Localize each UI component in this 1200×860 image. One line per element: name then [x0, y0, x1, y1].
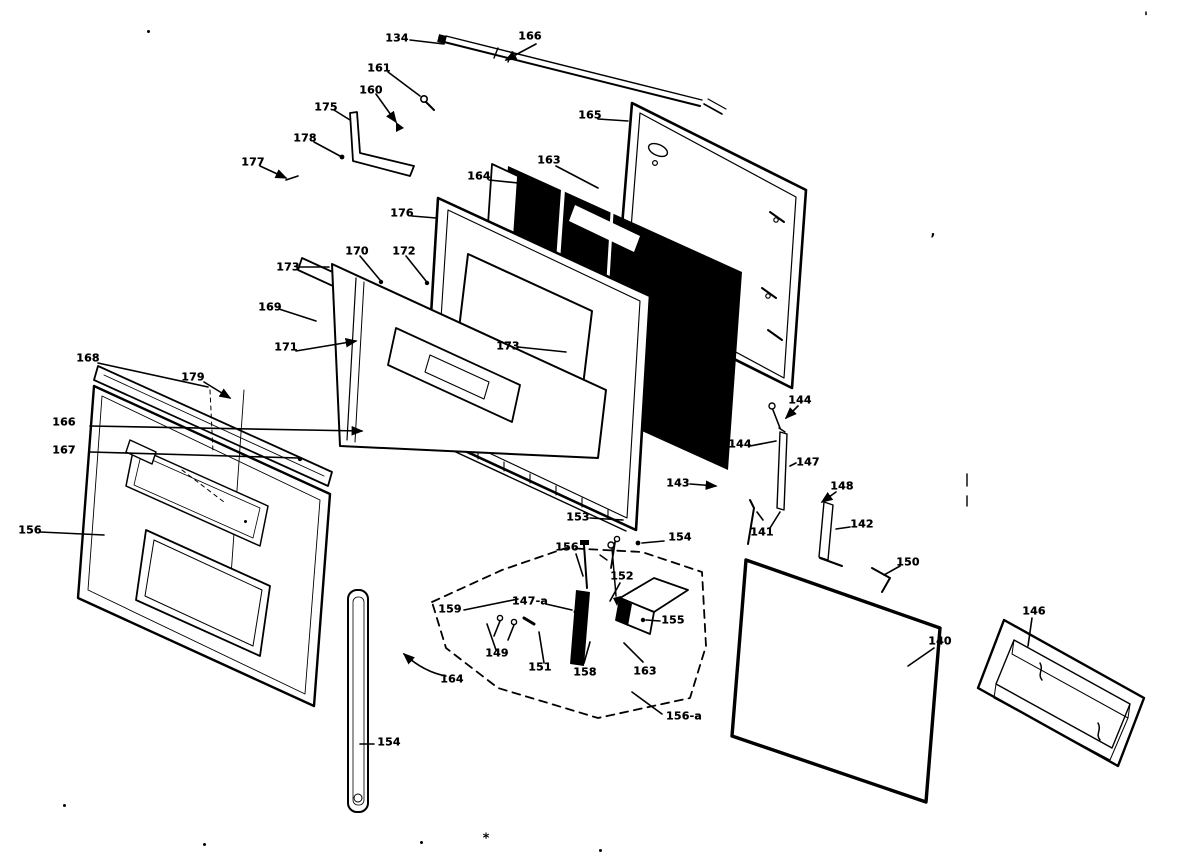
part-callout-147: 147 [796, 457, 820, 468]
screw-parts-top [396, 96, 434, 132]
part-callout-150: 150 [896, 557, 920, 568]
part-callout-163: 163 [537, 155, 561, 166]
part-callout-153: 153 [566, 512, 590, 523]
part-callout-160: 160 [359, 85, 383, 96]
stray-mark-apostrophe: ' [1144, 11, 1148, 26]
part-callout-149: 149 [485, 648, 509, 659]
part-callout-164: 164 [467, 171, 491, 182]
part-callout-156b: 156 [555, 542, 579, 553]
door-glass-panel [732, 560, 940, 802]
corner-bracket [350, 112, 414, 176]
part-callout-176: 176 [390, 208, 414, 219]
parts-diagram-page: 134 166 161 160 175 178 177 165 163 164 … [0, 0, 1200, 860]
part-callout-179: 179 [181, 372, 205, 383]
part-callout-178: 178 [293, 133, 317, 144]
part-callout-161: 161 [367, 63, 391, 74]
part-callout-146: 146 [1022, 606, 1046, 617]
ink-speck [599, 849, 602, 852]
stray-mark-asterisk: * [483, 832, 490, 847]
part-callout-156: 156 [18, 525, 42, 536]
ink-speck [244, 520, 247, 523]
ink-speck [63, 804, 66, 807]
front-door-panel [78, 366, 332, 706]
part-callout-154: 154 [668, 532, 692, 543]
ink-speck [420, 841, 423, 844]
part-callout-147a: 147-a [512, 596, 548, 607]
part-callout-134: 134 [385, 33, 409, 44]
part-callout-141: 141 [750, 527, 774, 538]
part-callout-154b: 154 [377, 737, 401, 748]
part-callout-142: 142 [850, 519, 874, 530]
part-callout-159: 159 [438, 604, 462, 615]
part-callout-171: 171 [274, 342, 298, 353]
hinge-hardware-cluster [748, 403, 890, 592]
part-callout-143: 143 [666, 478, 690, 489]
part-callout-155: 155 [661, 615, 685, 626]
part-callout-170: 170 [345, 246, 369, 257]
part-callout-173: 173 [276, 262, 300, 273]
part-callout-165: 165 [578, 110, 602, 121]
trim-frame-box [978, 620, 1144, 766]
part-callout-144b: 144 [728, 439, 752, 450]
part-callout-167: 167 [52, 445, 76, 456]
part-callout-166: 166 [518, 31, 542, 42]
exploded-view-drawing [0, 0, 1200, 860]
part-callout-175: 175 [314, 102, 338, 113]
ink-speck [203, 843, 206, 846]
hardware-bag-outline [432, 548, 706, 718]
part-callout-152: 152 [610, 571, 634, 582]
part-callout-148: 148 [830, 481, 854, 492]
part-callout-144: 144 [788, 395, 812, 406]
part-callout-177: 177 [241, 157, 265, 168]
part-callout-156a: 156-a [666, 711, 702, 722]
stray-mark-comma: , [931, 225, 936, 240]
part-callout-158: 158 [573, 667, 597, 678]
part-callout-163b: 163 [633, 666, 657, 677]
part-callout-169: 169 [258, 302, 282, 313]
door-handle-strip [348, 590, 368, 812]
part-callout-140: 140 [928, 636, 952, 647]
part-callout-166b: 166 [52, 417, 76, 428]
part-callout-164b: 164 [440, 674, 464, 685]
part-callout-172: 172 [392, 246, 416, 257]
part-callout-151: 151 [528, 662, 552, 673]
ink-speck [147, 30, 150, 33]
part-callout-168: 168 [76, 353, 100, 364]
part-callout-173b: 173 [496, 341, 520, 352]
hinge-rod [437, 34, 726, 114]
